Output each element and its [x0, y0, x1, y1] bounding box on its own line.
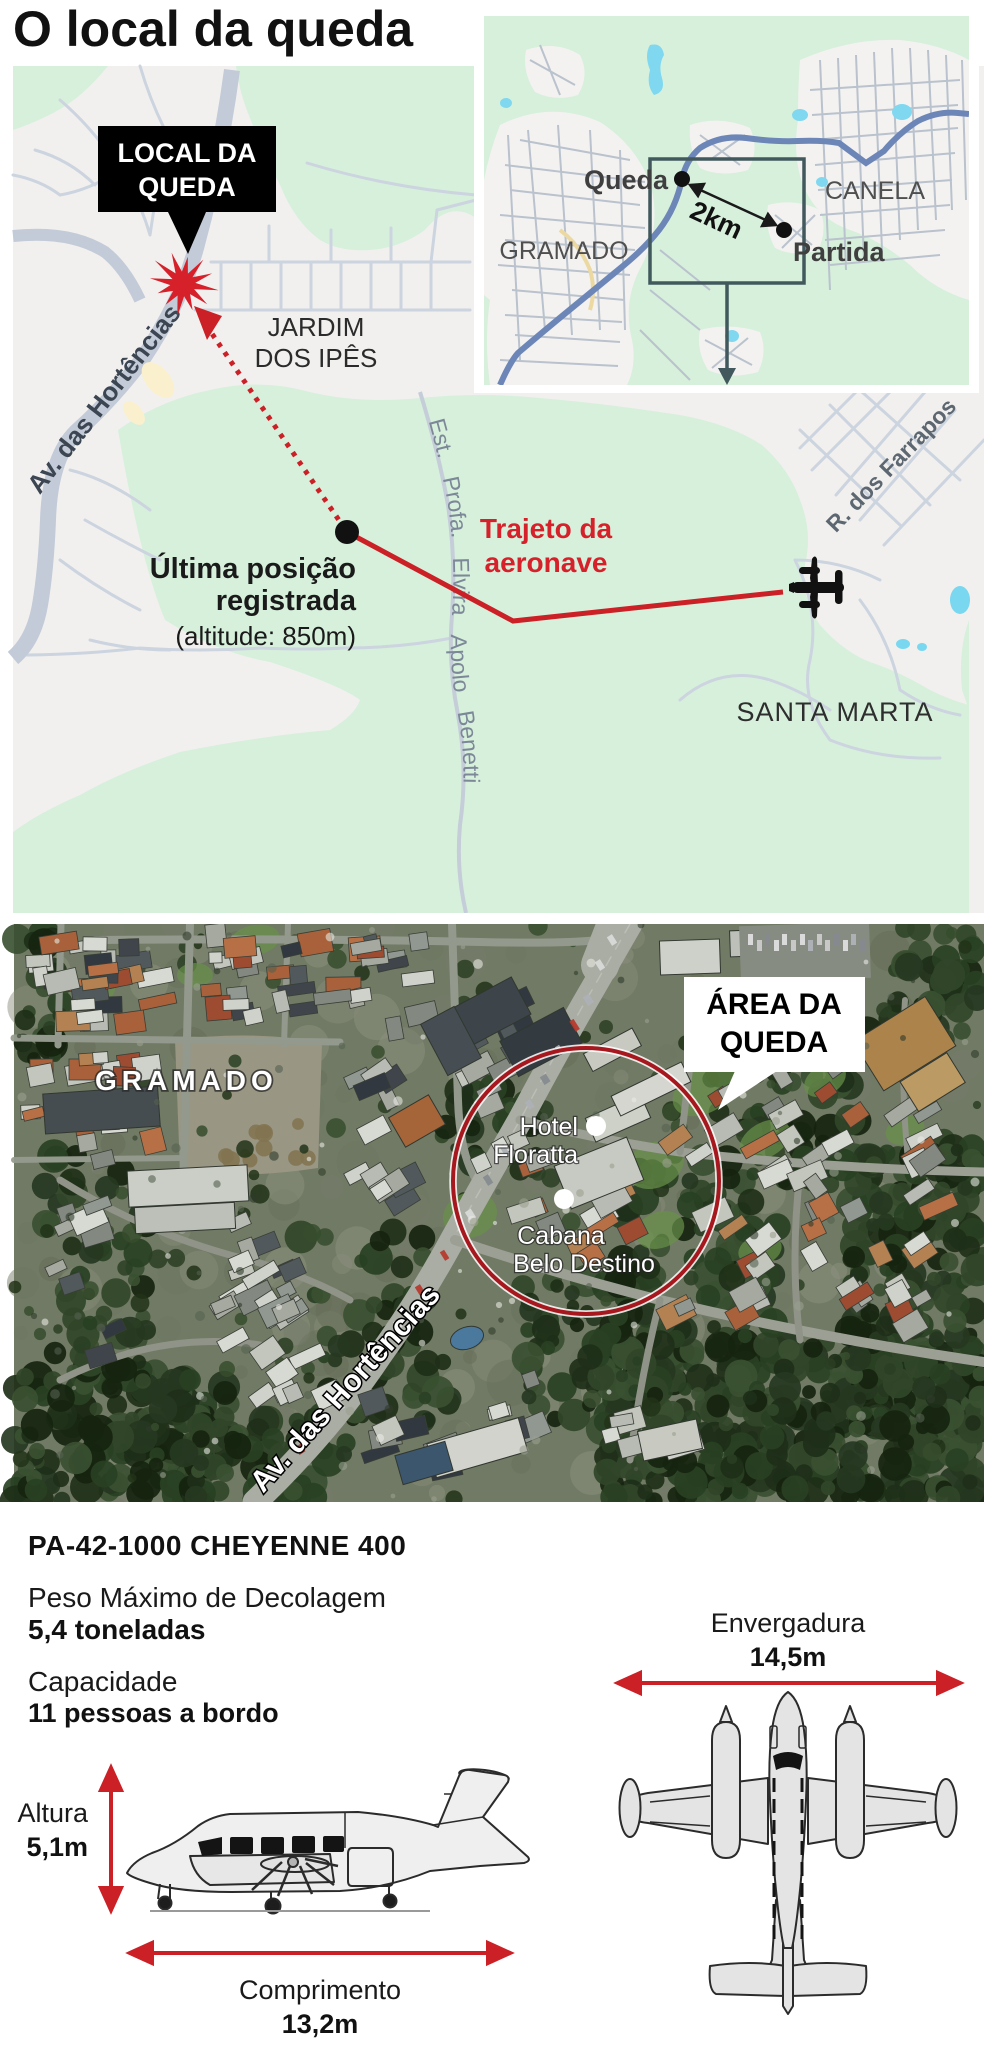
- svg-text:Partida: Partida: [793, 237, 886, 267]
- svg-text:aeronave: aeronave: [485, 547, 608, 578]
- svg-text:CANELA: CANELA: [825, 177, 925, 205]
- svg-text:LOCAL DA: LOCAL DA: [118, 138, 257, 168]
- svg-text:Última posição: Última posição: [150, 551, 356, 585]
- svg-text:JARDIM: JARDIM: [268, 312, 365, 342]
- svg-text:Cabana: Cabana: [517, 1222, 605, 1250]
- svg-text:GRAMADO: GRAMADO: [499, 237, 628, 265]
- svg-text:Trajeto da: Trajeto da: [480, 513, 613, 544]
- svg-text:GRAMADO: GRAMADO: [95, 1065, 278, 1096]
- svg-text:QUEDA: QUEDA: [720, 1026, 828, 1059]
- svg-text:Floratta: Floratta: [493, 1141, 578, 1169]
- svg-text:QUEDA: QUEDA: [138, 172, 236, 202]
- svg-text:SANTA MARTA: SANTA MARTA: [736, 697, 933, 727]
- svg-text:Hotel: Hotel: [520, 1113, 578, 1141]
- svg-text:Belo Destino: Belo Destino: [513, 1250, 655, 1278]
- svg-text:registrada: registrada: [216, 585, 357, 617]
- svg-text:(altitude: 850m): (altitude: 850m): [175, 621, 356, 651]
- svg-text:DOS IPÊS: DOS IPÊS: [255, 343, 378, 373]
- svg-text:Queda: Queda: [584, 165, 669, 195]
- svg-text:ÁREA DA: ÁREA DA: [706, 987, 842, 1021]
